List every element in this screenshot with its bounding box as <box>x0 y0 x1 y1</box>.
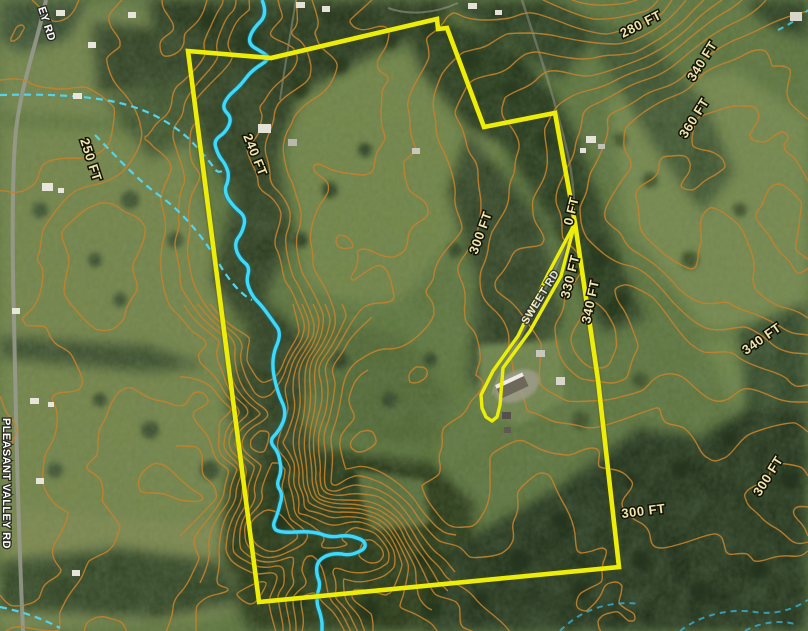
svg-text:PLEASANT VALLEY RD: PLEASANT VALLEY RD <box>0 418 12 549</box>
